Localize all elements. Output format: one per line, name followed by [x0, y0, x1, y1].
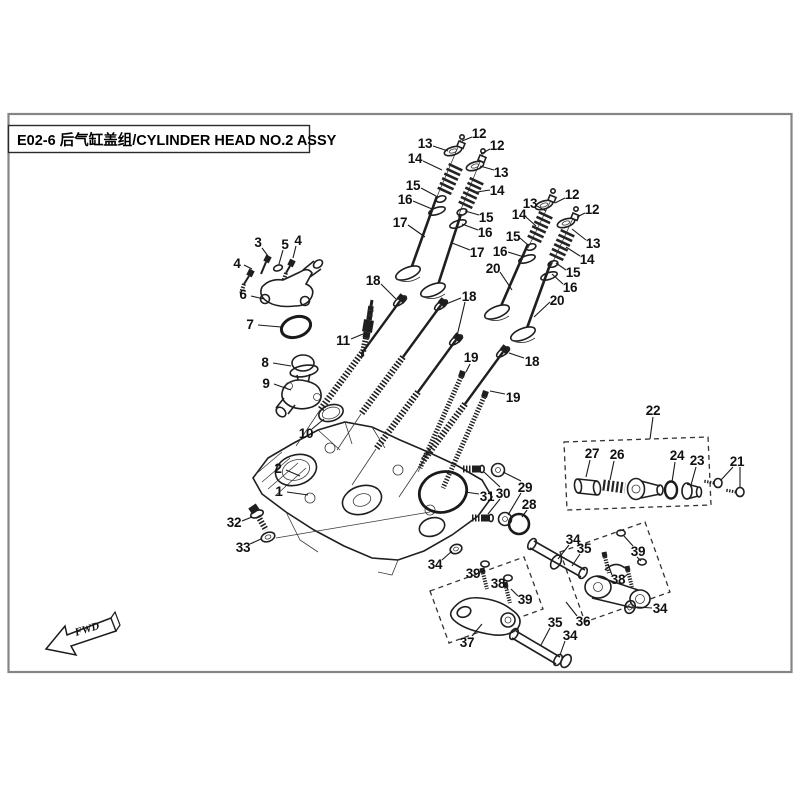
callout-18: 18: [509, 353, 540, 369]
callout-number: 15: [479, 210, 494, 225]
callout-number: 36: [576, 614, 591, 629]
leader-line: [279, 250, 283, 264]
washer-29-a: [492, 464, 505, 477]
thermostat-group: [241, 256, 345, 424]
valve-spring-14-a: [444, 164, 457, 192]
leader-line: [258, 325, 281, 327]
leader-line: [484, 472, 500, 487]
thermostat-housing-9: [274, 380, 321, 419]
callout-number: 4: [233, 256, 241, 271]
tensioner-cap-27: [574, 479, 601, 496]
leader-line: [465, 211, 479, 215]
bolt-3: [261, 256, 269, 274]
leader-line: [312, 419, 324, 429]
callout-number: 17: [393, 215, 407, 230]
callout-number: 13: [586, 236, 601, 251]
valve-17-a: [394, 196, 437, 283]
fwd-arrow: FWD: [46, 612, 120, 655]
washer-34-a: [449, 543, 463, 556]
callout-number: 38: [611, 572, 626, 587]
callout-number: 7: [246, 317, 253, 332]
callout-11: 11: [336, 333, 363, 348]
leader-line: [552, 274, 563, 284]
callout-12: 12: [577, 202, 599, 217]
callout-number: 13: [418, 136, 433, 151]
callout-number: 12: [472, 126, 486, 141]
callout-22: 22: [646, 403, 660, 439]
callout-15: 15: [465, 210, 494, 225]
callout-number: 22: [646, 403, 660, 418]
leader-line: [408, 225, 425, 237]
spring-seat-16-d: [540, 270, 558, 282]
callout-33: 33: [236, 539, 261, 555]
leader-line: [490, 391, 505, 394]
leader-line: [244, 265, 252, 269]
adjust-screw-38-d: [627, 566, 632, 587]
callout-15: 15: [556, 263, 581, 280]
callout-39: 39: [624, 536, 645, 561]
o-ring-7: [279, 313, 314, 341]
callout-19: 19: [464, 350, 478, 372]
diagram-svg: E02-6 后气缸盖组/CYLINDER HEAD NO.2 ASSY: [0, 0, 800, 800]
valve-cotter-12-c: [548, 189, 556, 203]
callout-number: 18: [462, 289, 477, 304]
leader-line: [421, 188, 436, 196]
callout-number: 15: [506, 229, 521, 244]
callout-number: 38: [491, 576, 506, 591]
callout-13: 13: [480, 165, 509, 180]
callout-number: 39: [631, 544, 645, 559]
callout-number: 1: [275, 484, 283, 499]
callout-number: 5: [281, 237, 289, 252]
callout-12: 12: [555, 187, 579, 203]
callout-number: 11: [336, 333, 350, 348]
leader-line: [480, 166, 494, 170]
leader-line: [452, 243, 470, 250]
page: E02-6 后气缸盖组/CYLINDER HEAD NO.2 ASSY: [0, 0, 800, 800]
callout-number: 6: [239, 287, 247, 302]
callout-number: 26: [610, 447, 625, 462]
o-ring-28: [509, 514, 529, 534]
callout-number: 16: [398, 192, 413, 207]
callout-36: 36: [566, 602, 591, 629]
callout-13: 13: [572, 229, 601, 251]
callout-4: 4: [233, 256, 252, 271]
rocker-arm-37: [451, 598, 520, 635]
callout-number: 19: [464, 350, 478, 365]
callout-8: 8: [261, 355, 291, 370]
leader-line: [509, 353, 524, 358]
callout-number: 15: [406, 178, 421, 193]
callout-39: 39: [511, 589, 532, 607]
callout-16: 16: [398, 192, 432, 209]
callout-number: 31: [480, 489, 495, 504]
leader-line: [462, 224, 478, 230]
leader-line: [572, 229, 586, 240]
callout-23: 23: [690, 453, 705, 485]
leader-line: [242, 517, 252, 521]
leader-line: [466, 364, 470, 372]
callout-15: 15: [506, 229, 528, 245]
callout-17: 17: [452, 243, 484, 260]
callout-14: 14: [408, 151, 442, 170]
leader-line: [457, 302, 465, 336]
callout-number: 12: [565, 187, 579, 202]
leader-line: [433, 146, 448, 151]
leader-line: [413, 201, 432, 209]
callout-7: 7: [246, 317, 281, 332]
callout-number: 20: [486, 261, 500, 276]
leader-line: [250, 539, 261, 544]
callout-19: 19: [490, 390, 520, 405]
callout-24: 24: [670, 448, 685, 482]
callout-13: 13: [418, 136, 448, 151]
valve-cotter-12-a: [457, 135, 465, 149]
leader-line: [262, 248, 268, 256]
adjust-screw-38-c: [604, 552, 609, 573]
leader-line: [500, 272, 512, 290]
callout-number: 14: [580, 252, 595, 267]
callout-number: 13: [494, 165, 509, 180]
callout-number: 33: [236, 540, 251, 555]
callout-26: 26: [610, 447, 625, 480]
tensioner-spring-26: [603, 485, 625, 488]
callout-number: 4: [294, 233, 302, 248]
callout-12: 12: [462, 126, 486, 141]
leader-line: [541, 628, 550, 645]
callout-32: 32: [227, 515, 252, 530]
callout-number: 14: [490, 183, 505, 198]
leader-line: [442, 551, 452, 560]
leader-line: [691, 467, 696, 485]
callout-number: 16: [493, 244, 508, 259]
leader-line: [477, 190, 490, 192]
o-ring-24: [665, 482, 677, 499]
callout-number: 16: [563, 280, 578, 295]
callout-number: 2: [274, 461, 281, 476]
fitting-23: [682, 483, 702, 499]
callout-number: 14: [408, 151, 423, 166]
callout-number: 39: [518, 592, 532, 607]
callout-17: 17: [393, 215, 425, 237]
callout-35: 35: [541, 615, 563, 645]
callout-5: 5: [279, 237, 289, 264]
valve-cotter-12-d: [571, 207, 579, 221]
valve-cotter-12-b: [478, 149, 486, 163]
callout-number: 28: [522, 497, 537, 512]
callout-number: 14: [512, 207, 527, 222]
callout-27: 27: [585, 446, 599, 477]
bolt-21-a: [703, 479, 722, 488]
callout-number: 35: [577, 541, 592, 556]
leader-line: [520, 238, 528, 245]
callout-number: 29: [518, 480, 532, 495]
callout-number: 35: [548, 615, 563, 630]
leader-line: [556, 263, 566, 270]
washer-5: [273, 264, 283, 272]
callout-number: 34: [563, 628, 578, 643]
callout-number: 12: [490, 138, 504, 153]
callout-number: 21: [730, 454, 745, 469]
leader-line: [273, 363, 291, 366]
callout-number: 37: [460, 635, 474, 650]
callout-34: 34: [428, 551, 452, 572]
leader-line: [381, 284, 396, 299]
valve-seal-15-b: [456, 208, 467, 217]
callout-number: 16: [478, 225, 493, 240]
leader-line: [555, 198, 565, 203]
callout-16: 16: [462, 224, 493, 240]
callout-number: 9: [262, 376, 269, 391]
callout-14: 14: [477, 183, 505, 198]
callout-number: 19: [506, 390, 520, 405]
dowel-pin-30-b: [472, 514, 493, 521]
leader-line: [650, 417, 653, 439]
callout-number: 18: [525, 354, 540, 369]
callout-4: 4: [293, 233, 302, 258]
page-title: E02-6 后气缸盖组/CYLINDER HEAD NO.2 ASSY: [17, 131, 337, 149]
adjust-screw-38-b: [505, 582, 510, 603]
callout-number: 3: [254, 235, 262, 250]
callout-number: 34: [428, 557, 443, 572]
callout-number: 30: [496, 486, 510, 501]
callout-number: 39: [466, 566, 480, 581]
leader-line: [560, 641, 565, 655]
callout-number: 32: [227, 515, 241, 530]
callout-number: 12: [585, 202, 599, 217]
leader-line: [446, 298, 461, 304]
callout-16: 16: [493, 244, 524, 259]
callout-18: 18: [366, 273, 396, 299]
bolt-21-b: [725, 488, 744, 497]
leader-line: [586, 460, 590, 477]
cylinder-head: [253, 422, 492, 575]
leader-line: [672, 462, 675, 482]
callout-number: 10: [299, 426, 313, 441]
callout-number: 18: [366, 273, 381, 288]
callout-number: 8: [261, 355, 269, 370]
spring-seat-16-a: [428, 205, 446, 217]
callout-number: 27: [585, 446, 599, 461]
callout-34: 34: [560, 628, 578, 655]
leader-line: [508, 252, 524, 257]
callout-number: 17: [470, 245, 484, 260]
callout-20: 20: [486, 261, 512, 290]
callout-21: 21: [721, 454, 745, 487]
tensioner-body: [628, 479, 664, 500]
leader-line: [566, 247, 580, 256]
leader-line: [610, 461, 614, 480]
callout-number: 20: [550, 293, 564, 308]
callout-number: 24: [670, 448, 685, 463]
callout-number: 15: [566, 265, 581, 280]
leader-line: [423, 161, 442, 170]
leader-line: [351, 334, 363, 339]
spring-seat-16-c: [518, 253, 536, 265]
callout-18: 18: [446, 289, 477, 336]
dowel-pin-30-a: [463, 465, 484, 472]
bolt-32: [250, 506, 266, 530]
lock-nut-39-a: [481, 561, 489, 567]
callout-3: 3: [254, 235, 268, 256]
lock-nut-39-d: [638, 559, 646, 565]
valve-spring-14-d: [556, 230, 569, 258]
callout-number: 34: [653, 601, 668, 616]
callout-number: 23: [690, 453, 705, 468]
callout-28: 28: [522, 497, 537, 517]
spark-plug: [362, 300, 374, 357]
